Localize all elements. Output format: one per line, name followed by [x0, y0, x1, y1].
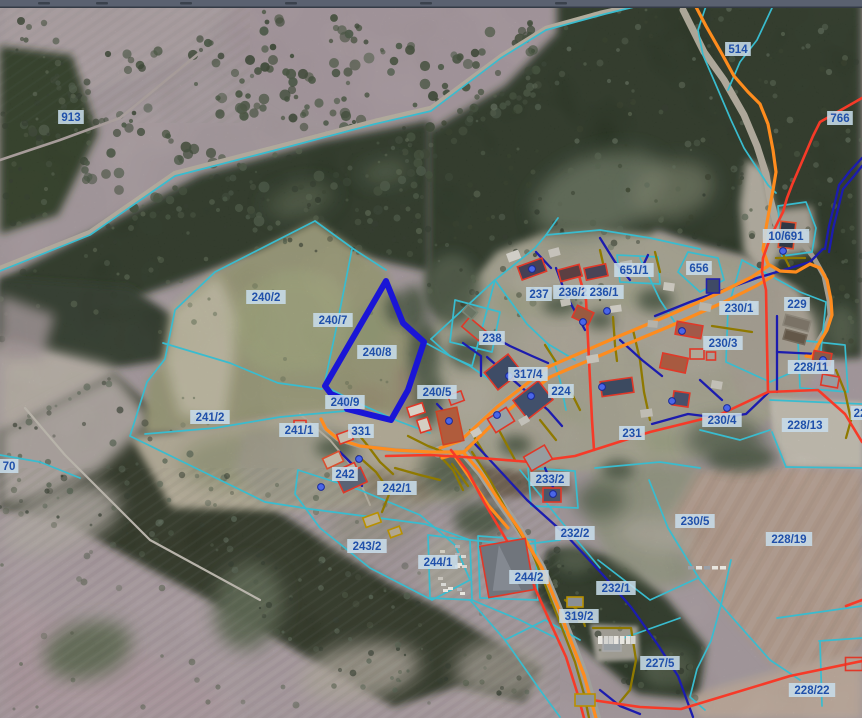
- svg-text:244/2: 244/2: [515, 572, 544, 584]
- svg-text:238: 238: [482, 333, 502, 345]
- svg-text:913: 913: [61, 112, 80, 124]
- svg-text:224: 224: [551, 386, 571, 398]
- svg-text:236/2: 236/2: [559, 287, 588, 299]
- svg-text:241/2: 241/2: [196, 412, 225, 424]
- svg-text:230/5: 230/5: [681, 516, 710, 528]
- svg-text:230/3: 230/3: [709, 338, 738, 350]
- svg-text:228/11: 228/11: [794, 362, 829, 374]
- svg-text:242: 242: [335, 469, 354, 481]
- svg-text:241/1: 241/1: [285, 425, 314, 437]
- svg-text:331: 331: [351, 426, 371, 438]
- svg-text:243/2: 243/2: [353, 541, 382, 553]
- svg-text:656: 656: [689, 263, 708, 275]
- svg-text:10/691: 10/691: [768, 231, 804, 243]
- svg-text:514: 514: [728, 44, 748, 56]
- svg-text:240/7: 240/7: [319, 315, 348, 327]
- svg-text:232/1: 232/1: [602, 583, 631, 595]
- svg-text:233/2: 233/2: [536, 474, 565, 486]
- svg-text:237: 237: [529, 289, 548, 301]
- svg-text:231: 231: [622, 428, 642, 440]
- svg-text:317/4: 317/4: [514, 369, 543, 381]
- svg-text:232/2: 232/2: [561, 528, 590, 540]
- svg-text:228/19: 228/19: [771, 534, 806, 546]
- svg-text:228/22: 228/22: [794, 685, 829, 697]
- svg-text:228/13: 228/13: [787, 420, 822, 432]
- svg-text:230/4: 230/4: [708, 415, 737, 427]
- svg-text:227/5: 227/5: [646, 658, 675, 670]
- svg-text:240/5: 240/5: [423, 387, 452, 399]
- svg-text:229: 229: [787, 299, 806, 311]
- svg-text:236/1: 236/1: [590, 287, 619, 299]
- svg-text:319/2: 319/2: [565, 611, 594, 623]
- svg-text:766: 766: [830, 113, 849, 125]
- svg-text:70: 70: [3, 461, 16, 473]
- svg-text:22: 22: [854, 408, 862, 420]
- svg-text:240/8: 240/8: [363, 347, 392, 359]
- svg-text:242/1: 242/1: [383, 483, 412, 495]
- svg-text:240/2: 240/2: [252, 292, 281, 304]
- svg-text:651/1: 651/1: [620, 265, 649, 277]
- svg-text:244/1: 244/1: [424, 557, 453, 569]
- svg-text:240/9: 240/9: [331, 397, 360, 409]
- svg-text:230/1: 230/1: [725, 303, 754, 315]
